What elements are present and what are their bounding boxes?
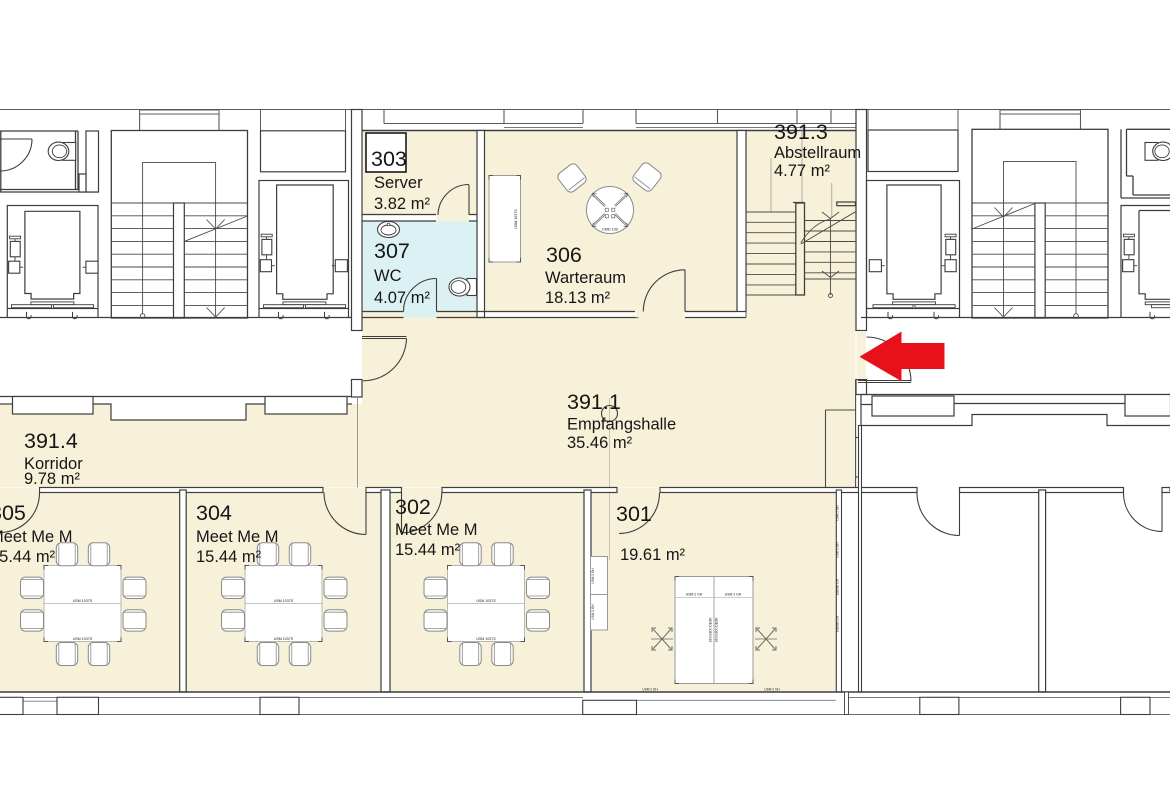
svg-text:391.1: 391.1 <box>567 390 621 414</box>
svg-text:USM 2 OH: USM 2 OH <box>591 568 595 584</box>
svg-text:307: 307 <box>374 239 410 263</box>
svg-text:305: 305 <box>0 501 26 525</box>
svg-text:15.44 m²: 15.44 m² <box>395 541 461 559</box>
svg-text:19.61 m²: 19.61 m² <box>620 546 686 564</box>
svg-text:9.78 m²: 9.78 m² <box>24 470 80 488</box>
svg-text:391.3: 391.3 <box>774 120 828 144</box>
svg-text:306: 306 <box>546 243 582 267</box>
svg-text:USM 2 OH: USM 2 OH <box>686 593 703 597</box>
svg-text:Meet Me M: Meet Me M <box>0 528 73 546</box>
svg-text:15.44 m²: 15.44 m² <box>196 548 262 566</box>
svg-text:18.13 m²: 18.13 m² <box>545 289 611 307</box>
svg-text:USM 2 OH: USM 2 OH <box>725 593 742 597</box>
svg-text:WC: WC <box>374 267 402 285</box>
svg-text:1600x800 DESK: 1600x800 DESK <box>709 617 713 643</box>
svg-text:USM 2 OH: USM 2 OH <box>836 542 840 558</box>
svg-text:4.07 m²: 4.07 m² <box>374 289 430 307</box>
svg-text:302: 302 <box>395 495 431 519</box>
svg-text:Meet Me M: Meet Me M <box>395 521 478 539</box>
svg-text:301: 301 <box>616 502 652 526</box>
svg-text:3.82 m²: 3.82 m² <box>374 195 430 213</box>
svg-text:4.77 m²: 4.77 m² <box>774 162 830 180</box>
svg-text:160x80 CM: 160x80 CM <box>836 616 840 633</box>
svg-text:35.46 m²: 35.46 m² <box>567 434 633 452</box>
svg-text:USM 2 OH: USM 2 OH <box>591 604 595 620</box>
svg-text:USM 1037S: USM 1037S <box>514 209 518 229</box>
svg-text:304: 304 <box>196 501 232 525</box>
svg-text:USM 2 OH: USM 2 OH <box>642 688 658 692</box>
svg-text:1600x800 DESK: 1600x800 DESK <box>715 617 719 643</box>
svg-text:USM 2 OH: USM 2 OH <box>764 688 780 692</box>
svg-text:Warteraum: Warteraum <box>545 269 626 287</box>
svg-text:15.44 m²: 15.44 m² <box>0 548 56 566</box>
svg-text:Meet Me M: Meet Me M <box>196 528 279 546</box>
svg-text:CMD 100: CMD 100 <box>602 228 618 232</box>
svg-text:160x80 CM: 160x80 CM <box>836 579 840 596</box>
svg-text:303: 303 <box>371 147 407 171</box>
svg-text:Abstellraum: Abstellraum <box>774 144 861 162</box>
svg-text:391.4: 391.4 <box>24 429 78 453</box>
svg-text:Empfangshalle: Empfangshalle <box>567 416 676 434</box>
svg-text:USM 2 OH: USM 2 OH <box>836 505 840 521</box>
svg-text:Server: Server <box>374 174 423 192</box>
